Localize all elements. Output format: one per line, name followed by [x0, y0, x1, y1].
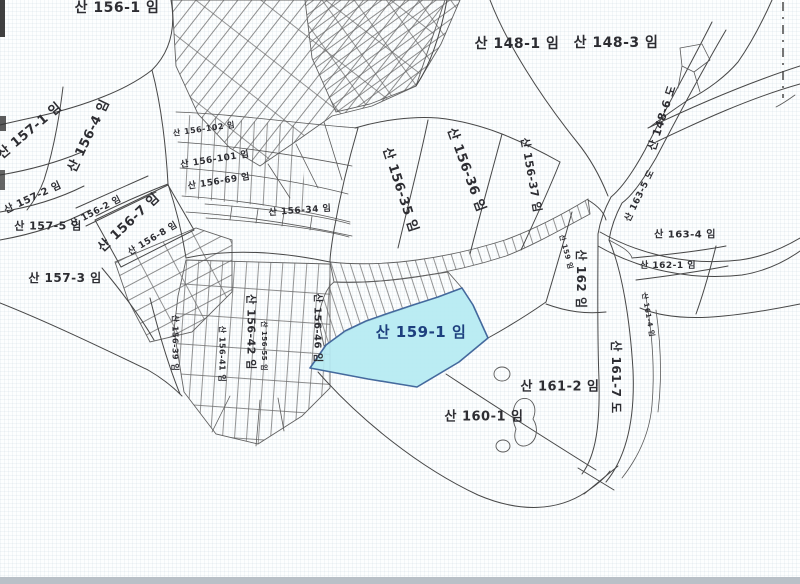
parcel-label: 산 157-2 임 [2, 178, 64, 216]
parcel-label: 산 156-41 임 [218, 326, 228, 382]
parcel-label: 산 156-42 임 [245, 294, 259, 370]
parcel-label: 산 163-5 도 [621, 168, 656, 224]
parcel-label: 산 156-55 임 [260, 321, 269, 371]
parcel-label: 산 156-4 임 [64, 97, 113, 175]
parcel-label: 산 159-1 임 [376, 323, 467, 341]
parcel-label: 산 161-4 임 [640, 292, 657, 338]
scan-edge-mark [0, 170, 5, 190]
parcel-label: 산 148-6 도 [644, 84, 678, 153]
parcel-label: 산 156-36 임 [444, 125, 489, 214]
cadastral-map-svg: 산 156-1 임산 148-1 임산 148-3 임산 148-6 도산 15… [0, 0, 800, 584]
parcel-label: 산 156-7 임 [94, 190, 163, 256]
parcel-label: 산 156-2 임 [68, 193, 123, 230]
parcel-label: 산 157-1 임 [0, 99, 65, 162]
scan-bottom-bar [0, 577, 800, 584]
grid-fan-ne-corner [305, 0, 460, 112]
parcel-label: 산 160-1 임 [444, 409, 523, 425]
pond-icon [496, 440, 510, 452]
parcel-label: 산 162-1 임 [640, 259, 696, 271]
grid-arc-band [330, 199, 590, 282]
parcel-label: 산 156-39 임 [171, 315, 181, 371]
parcel-label: 산 157-3 임 [28, 270, 101, 285]
scanned-cadastral-map: 산 156-1 임산 148-1 임산 148-3 임산 148-6 도산 15… [0, 0, 800, 584]
parcel-label: 산 156-46 임 [312, 293, 325, 362]
parcel-label: 산 148-1 임 [475, 35, 560, 52]
parcel-label: 산 161-7 도 [609, 340, 624, 413]
parcel-label: 산 156-37 임 [518, 136, 545, 213]
dense-parcel-grids [115, 0, 590, 444]
pond-icon [494, 367, 510, 381]
parcel-label: 산 156-1 임 [75, 0, 160, 16]
parcel-label: 산 159 임 [557, 233, 575, 270]
scan-edge-mark [0, 0, 5, 37]
parcel-label: 산 162 임 [574, 250, 589, 309]
parcel-label: 산 163-4 임 [654, 228, 716, 241]
scan-edge-mark [0, 116, 6, 131]
parcel-label: 산 148-3 임 [574, 34, 659, 51]
parcel-label: 산 161-2 임 [520, 379, 599, 395]
parcel-label: 산 156-35 임 [379, 145, 422, 234]
